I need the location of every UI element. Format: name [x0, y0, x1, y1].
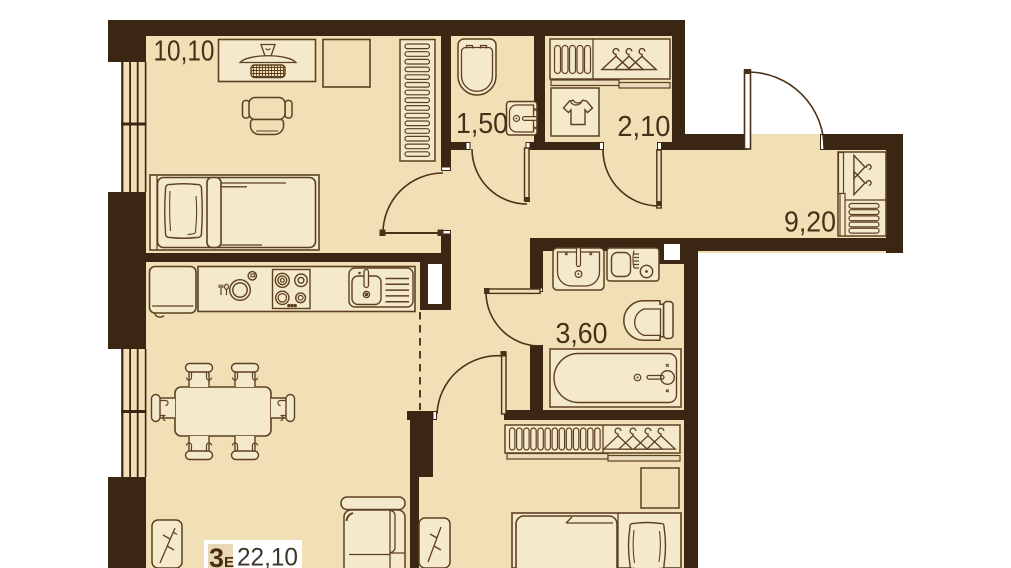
svg-text:1,50: 1,50: [456, 108, 508, 140]
svg-text:2,10: 2,10: [617, 111, 670, 143]
svg-text:22,10: 22,10: [237, 544, 298, 568]
svg-text:3: 3: [209, 543, 224, 568]
svg-text:10,10: 10,10: [154, 35, 215, 67]
svg-text:3,60: 3,60: [556, 318, 608, 350]
svg-text:9,20: 9,20: [784, 207, 836, 239]
svg-text:Е: Е: [224, 554, 234, 568]
